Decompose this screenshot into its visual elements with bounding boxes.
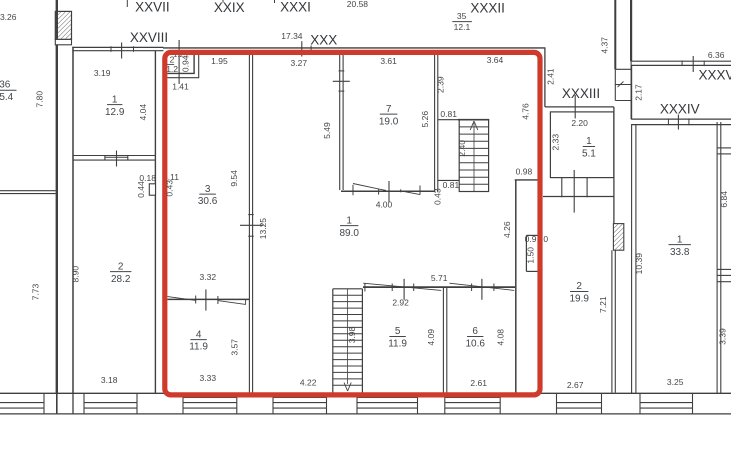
- svg-text:3.25: 3.25: [667, 377, 684, 387]
- svg-text:4.04: 4.04: [138, 104, 148, 121]
- svg-text:19.9: 19.9: [569, 294, 589, 305]
- svg-text:6.36: 6.36: [708, 50, 725, 60]
- svg-text:4.37: 4.37: [600, 37, 610, 54]
- svg-text:25.4: 25.4: [0, 92, 14, 103]
- svg-text:2.39: 2.39: [436, 76, 446, 93]
- svg-text:0: 0: [543, 234, 548, 244]
- svg-text:2: 2: [576, 281, 582, 292]
- svg-text:9.54: 9.54: [229, 170, 239, 187]
- svg-text:XXXI: XXXI: [280, 0, 311, 15]
- svg-text:1.95: 1.95: [211, 56, 228, 66]
- svg-text:5.49: 5.49: [322, 122, 332, 139]
- svg-text:12.1: 12.1: [454, 22, 471, 32]
- svg-text:1.2: 1.2: [166, 64, 178, 74]
- svg-text:0.98: 0.98: [516, 166, 533, 176]
- svg-text:10.39: 10.39: [634, 253, 644, 275]
- svg-text:2.33: 2.33: [551, 134, 561, 151]
- svg-text:XXXII: XXXII: [470, 1, 505, 16]
- svg-text:3.64: 3.64: [487, 55, 504, 65]
- svg-text:5.71: 5.71: [431, 273, 448, 283]
- svg-text:30.6: 30.6: [198, 196, 218, 207]
- svg-text:7.73: 7.73: [31, 283, 41, 300]
- svg-text:0.44: 0.44: [136, 181, 146, 198]
- svg-text:3.33: 3.33: [200, 373, 217, 383]
- svg-text:3.61: 3.61: [380, 56, 397, 66]
- svg-text:11.9: 11.9: [388, 339, 407, 350]
- svg-text:4.76: 4.76: [520, 103, 530, 120]
- svg-text:4: 4: [196, 329, 202, 340]
- svg-text:1.41: 1.41: [172, 81, 189, 91]
- svg-text:2: 2: [118, 261, 124, 272]
- svg-text:1: 1: [346, 215, 352, 226]
- svg-text:2.92: 2.92: [392, 298, 409, 308]
- svg-text:5: 5: [395, 326, 401, 337]
- svg-text:XXXIII: XXXIII: [562, 86, 600, 101]
- svg-text:1: 1: [677, 234, 683, 245]
- svg-text:3.26: 3.26: [0, 12, 17, 22]
- svg-text:0.81: 0.81: [440, 109, 457, 119]
- svg-text:1: 1: [112, 94, 118, 105]
- svg-text:XXVIII: XXVIII: [130, 30, 168, 45]
- svg-text:33.8: 33.8: [670, 247, 690, 258]
- svg-text:XXXIV: XXXIV: [660, 102, 700, 117]
- svg-text:3.27: 3.27: [291, 58, 308, 68]
- svg-text:10.6: 10.6: [465, 339, 485, 350]
- svg-text:XXXVI: XXXVI: [699, 68, 731, 83]
- svg-text:4.08: 4.08: [495, 329, 505, 346]
- svg-text:4.26: 4.26: [502, 221, 512, 238]
- svg-text:4.22: 4.22: [300, 378, 317, 388]
- svg-text:17.34: 17.34: [281, 31, 303, 41]
- svg-text:1.50: 1.50: [526, 247, 536, 264]
- svg-text:6.84: 6.84: [719, 191, 729, 208]
- svg-text:0.9: 0.9: [525, 234, 537, 244]
- svg-text:XXIX: XXIX: [214, 0, 245, 15]
- svg-text:3.32: 3.32: [200, 272, 217, 282]
- svg-text:89.0: 89.0: [339, 228, 359, 239]
- svg-text:5.26: 5.26: [420, 111, 430, 128]
- svg-text:2.20: 2.20: [571, 118, 588, 128]
- svg-text:20.58: 20.58: [347, 0, 369, 9]
- svg-text:4.09: 4.09: [426, 329, 436, 346]
- svg-text:2.41: 2.41: [546, 68, 556, 85]
- svg-text:5.1: 5.1: [582, 149, 596, 160]
- svg-text:6: 6: [472, 326, 478, 337]
- svg-text:2.67: 2.67: [567, 380, 584, 390]
- svg-text:0.43: 0.43: [164, 180, 174, 197]
- svg-text:3.19: 3.19: [94, 68, 111, 78]
- svg-text:3: 3: [205, 184, 211, 195]
- svg-text:4.00: 4.00: [376, 199, 393, 209]
- svg-text:XXVII: XXVII: [135, 0, 170, 15]
- svg-text:28.2: 28.2: [111, 274, 131, 285]
- svg-text:1: 1: [586, 136, 592, 147]
- svg-text:2.40: 2.40: [457, 140, 467, 157]
- svg-text:7: 7: [386, 104, 392, 115]
- svg-text:13.25: 13.25: [258, 218, 268, 240]
- svg-text:2.17: 2.17: [634, 84, 644, 101]
- svg-text:11.9: 11.9: [189, 342, 208, 353]
- svg-text:2.61: 2.61: [470, 378, 487, 388]
- svg-text:3.57: 3.57: [229, 339, 239, 356]
- svg-text:XXX: XXX: [310, 33, 337, 48]
- svg-text:3.98: 3.98: [347, 326, 357, 343]
- svg-text:19.0: 19.0: [379, 117, 399, 128]
- svg-text:0.81: 0.81: [443, 180, 460, 190]
- svg-text:7.21: 7.21: [598, 296, 608, 313]
- svg-text:136: 136: [0, 80, 11, 91]
- svg-text:0.43: 0.43: [433, 188, 443, 205]
- svg-text:12.9: 12.9: [105, 107, 125, 118]
- svg-text:8.90: 8.90: [71, 266, 81, 283]
- svg-text:35: 35: [457, 11, 467, 21]
- svg-text:3.18: 3.18: [101, 375, 118, 385]
- svg-text:3.39: 3.39: [718, 328, 728, 345]
- svg-text:7.80: 7.80: [35, 91, 45, 108]
